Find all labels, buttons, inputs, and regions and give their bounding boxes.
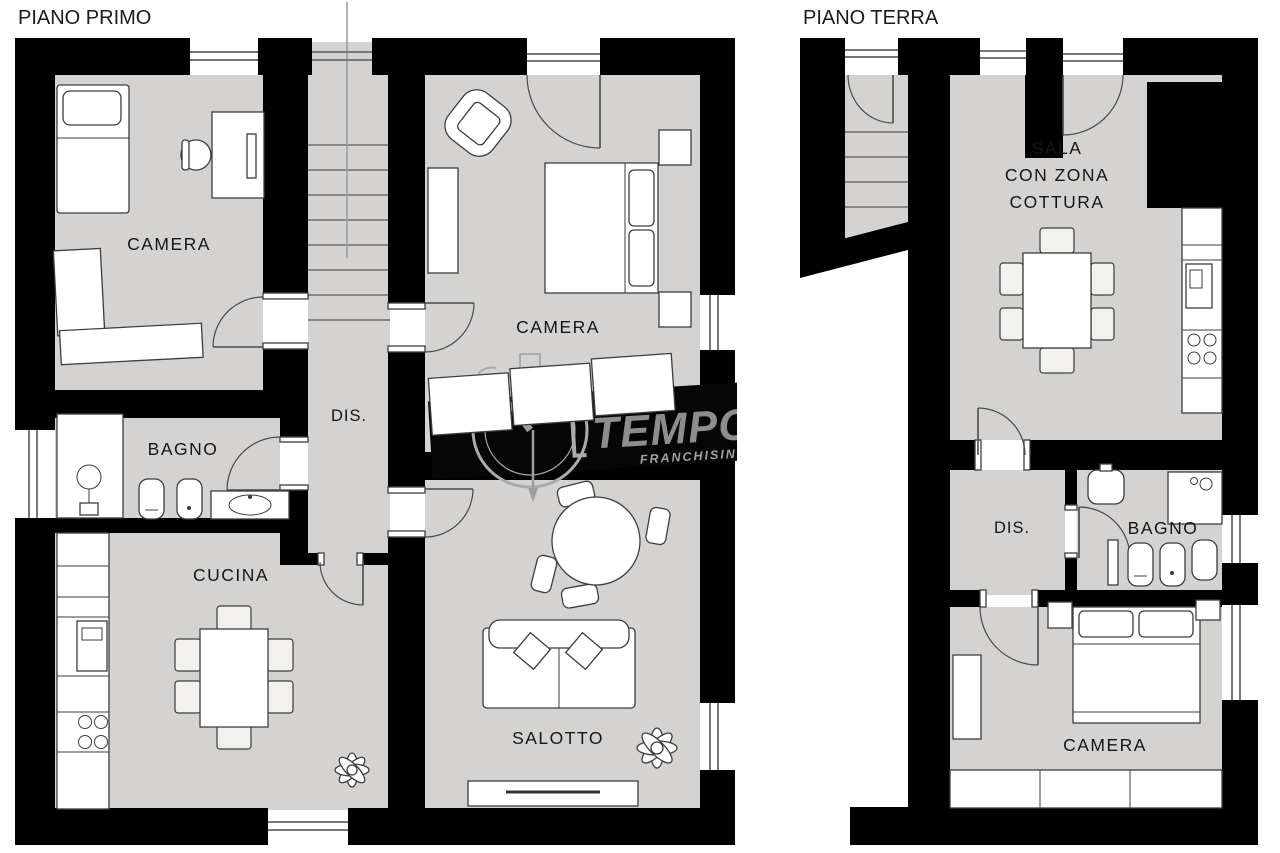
bidet: [177, 479, 202, 519]
window: [1232, 515, 1240, 563]
disimpegno-floor: [308, 42, 390, 553]
floor-plan-drawing: TEMPOC FRANCHISING N: [0, 0, 1280, 853]
plan-title-piano-primo: PIANO PRIMO: [18, 7, 151, 29]
window: [29, 430, 37, 518]
window: [980, 51, 1026, 58]
room-label-sala-line2: CON ZONA: [1005, 165, 1109, 185]
single-bed: [57, 85, 129, 213]
room-label-camera-nord: CAMERA: [127, 234, 211, 254]
room-label-sala-line1: SALA: [1032, 138, 1083, 158]
toilet: [1192, 540, 1217, 580]
nightstand: [1048, 602, 1072, 628]
nightstand: [1196, 600, 1220, 620]
desk: [212, 112, 264, 198]
nightstand: [659, 130, 691, 165]
tall-cabinet: [953, 655, 981, 739]
piano-terra-plan: [800, 38, 1258, 845]
shower: [1168, 472, 1222, 524]
window: [268, 822, 348, 830]
desk-chair: [181, 140, 211, 170]
shower: [57, 414, 123, 518]
kitchen-counter: [57, 533, 109, 809]
kitchen-counter: [1182, 208, 1222, 413]
room-label-cucina: CUCINA: [193, 565, 269, 585]
plant: [637, 728, 677, 768]
wardrobe: [950, 770, 1222, 808]
window: [710, 703, 718, 770]
double-bed: [545, 163, 658, 293]
room-label-bagno: BAGNO: [148, 439, 219, 459]
room-label-camera-sud: CAMERA: [516, 317, 600, 337]
room-label-sala-line3: COTTURA: [1009, 192, 1104, 212]
room-label-bagno-terra: BAGNO: [1128, 518, 1199, 538]
shelf: [428, 168, 458, 273]
double-bed: [1073, 607, 1200, 723]
sink-vanity: [211, 491, 289, 519]
room-label-camera-terra: CAMERA: [1063, 735, 1147, 755]
room-label-dis-terra: DIS.: [994, 519, 1030, 537]
sofa: [483, 620, 635, 708]
window: [710, 295, 718, 350]
window: [190, 52, 258, 60]
toilet: [139, 479, 164, 519]
window: [1232, 605, 1240, 700]
bidet: [1160, 543, 1185, 586]
floor-plan-page: TEMPOC FRANCHISING N: [0, 0, 1280, 853]
plant: [335, 753, 369, 787]
tv-stand: [468, 781, 638, 806]
toilet: [1128, 543, 1153, 586]
plan-title-piano-terra: PIANO TERRA: [803, 7, 939, 29]
nightstand: [659, 292, 691, 327]
radiator: [1108, 540, 1118, 585]
room-label-dis: DIS.: [331, 407, 367, 425]
room-label-salotto: SALOTTO: [512, 728, 604, 748]
